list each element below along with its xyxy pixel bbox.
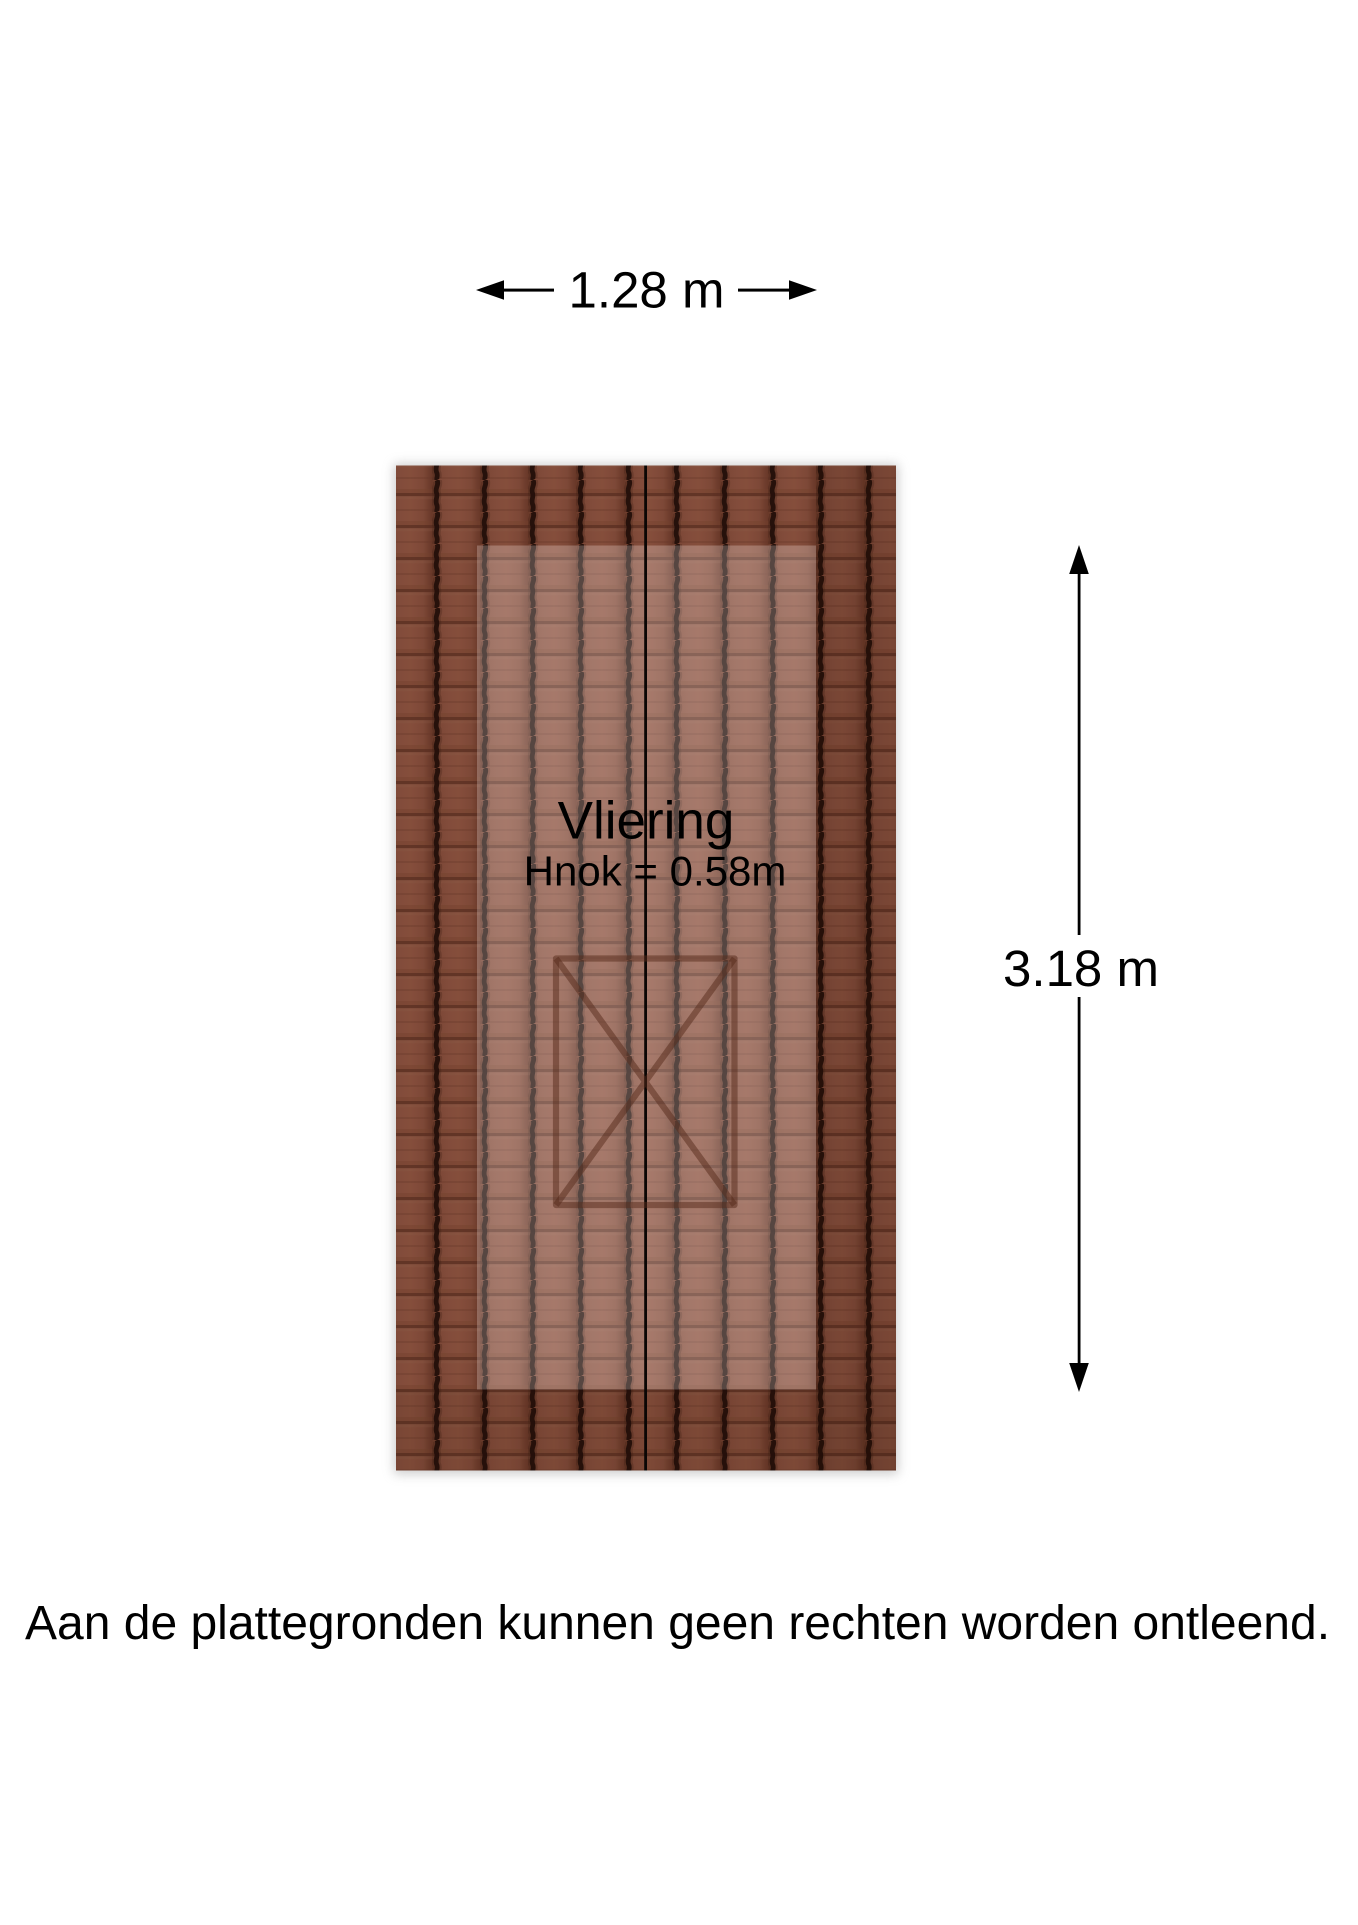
svg-text:Vliering: Vliering (558, 792, 735, 851)
svg-text:Aan de plattegronden kunnen ge: Aan de plattegronden kunnen geen rechten… (25, 1597, 1330, 1650)
svg-text:1.28 m: 1.28 m (569, 262, 725, 319)
svg-text:3.18 m: 3.18 m (1003, 940, 1159, 997)
svg-text:Hnok = 0.58m: Hnok = 0.58m (524, 848, 787, 895)
